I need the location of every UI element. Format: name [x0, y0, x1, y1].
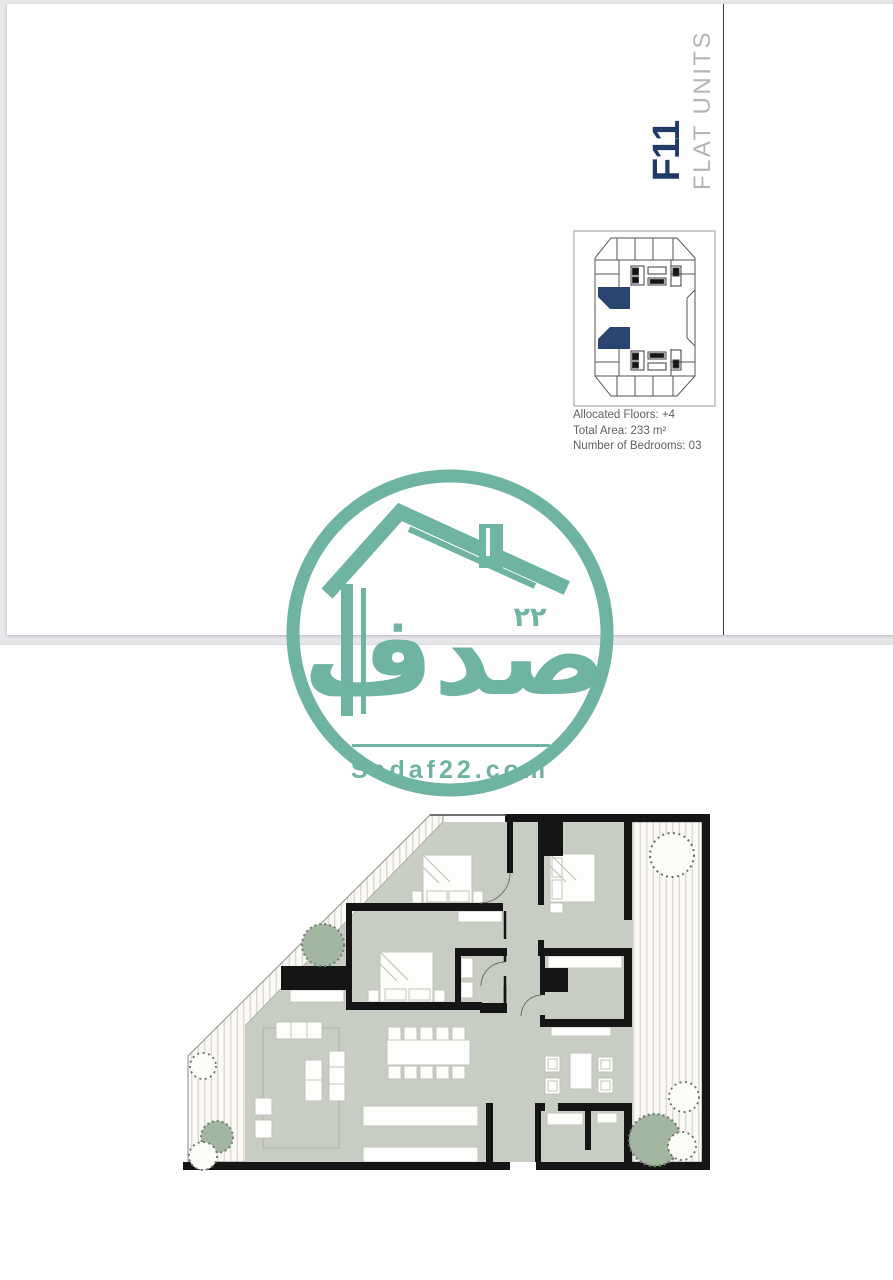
armchair — [545, 1078, 560, 1094]
dining-chair — [436, 1066, 449, 1079]
dining-chair — [436, 1027, 449, 1040]
dining-chair — [404, 1027, 417, 1040]
dining-chair — [452, 1066, 465, 1079]
logo-domain-text: Sadaf22.com — [351, 756, 549, 784]
watermark-logo: صدف ٢٢ Sadaf22.com — [283, 466, 617, 800]
nightstand — [473, 891, 483, 903]
tree-white — [668, 1132, 696, 1160]
cabinet — [551, 1027, 611, 1036]
dining-chair — [388, 1066, 401, 1079]
unit-type-title: FLAT UNITS — [689, 26, 717, 194]
vanity — [548, 956, 622, 968]
tree-white — [190, 1053, 216, 1079]
nightstand — [412, 891, 422, 903]
side-table — [255, 1120, 272, 1138]
console-shelf — [290, 990, 344, 1002]
spec-area: Total Area: 233 m² — [573, 424, 701, 440]
side-table — [255, 1098, 272, 1115]
logo-underline — [352, 744, 550, 747]
entry-cabinet — [547, 1113, 583, 1125]
door-opening — [545, 1103, 558, 1111]
wc-fixture — [461, 958, 473, 978]
armchair — [598, 1057, 613, 1072]
wardrobe — [458, 911, 502, 922]
logo-arabic-name: صدف — [303, 591, 606, 721]
sofa-long — [329, 1051, 345, 1101]
building-keyplan — [573, 230, 716, 408]
dining-area — [387, 1027, 470, 1079]
spec-bedrooms: Number of Bedrooms: 03 — [573, 439, 701, 455]
logo-arabic-number: ٢٢ — [514, 602, 547, 633]
dining-chair — [420, 1027, 433, 1040]
entry-cabinet — [597, 1113, 617, 1123]
nightstand — [550, 903, 563, 913]
bedroom-1 — [412, 855, 483, 903]
tree-white — [189, 1142, 217, 1170]
nightstand — [368, 990, 379, 1002]
coffee-table — [570, 1053, 592, 1089]
spec-floors: Allocated Floors: +4 — [573, 408, 701, 424]
wc-fixture — [461, 982, 473, 998]
entrance-opening — [510, 1162, 536, 1170]
dining-chair — [404, 1066, 417, 1079]
sofa-three-seat — [276, 1022, 322, 1039]
tree-white — [650, 833, 694, 877]
dining-table — [387, 1040, 470, 1065]
armchair — [545, 1056, 560, 1072]
unit-code-title: F11 — [649, 116, 685, 186]
nightstand — [434, 990, 445, 1002]
dining-chair — [388, 1027, 401, 1040]
brochure-view: { "page": { "unit_code": "F11", "unit_ty… — [0, 0, 893, 1280]
floor-plan — [178, 806, 718, 1176]
kitchen-counter — [363, 1147, 478, 1162]
bedroom-3 — [368, 952, 445, 1002]
tree-white — [669, 1082, 699, 1112]
armchair — [598, 1078, 613, 1093]
dining-chair — [452, 1027, 465, 1040]
kitchen-island — [363, 1106, 478, 1126]
vertical-divider-line — [723, 4, 724, 635]
dining-chair — [420, 1066, 433, 1079]
tree-sage — [302, 924, 344, 966]
unit-specs: Allocated Floors: +4 Total Area: 233 m² … — [573, 408, 701, 455]
